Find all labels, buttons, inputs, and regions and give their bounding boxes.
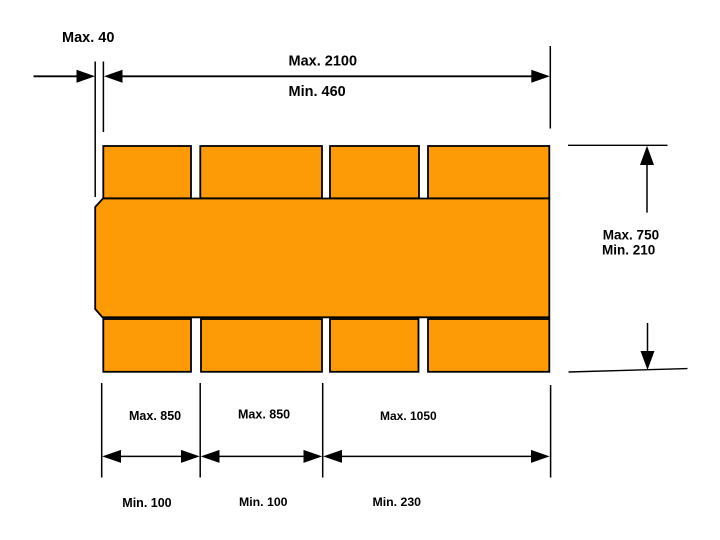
svg-text:Min. 100: Min. 100 bbox=[122, 496, 171, 510]
svg-text:Min. 210: Min. 210 bbox=[602, 243, 655, 258]
svg-text:Max. 850: Max. 850 bbox=[129, 409, 181, 423]
svg-text:Max. 750: Max. 750 bbox=[603, 228, 659, 243]
svg-text:Min. 230: Min. 230 bbox=[373, 495, 422, 509]
svg-text:Max. 1050: Max. 1050 bbox=[380, 409, 437, 423]
svg-text:Max. 2100: Max. 2100 bbox=[289, 53, 358, 69]
svg-text:Min. 460: Min. 460 bbox=[289, 84, 346, 100]
svg-text:Max. 40: Max. 40 bbox=[62, 30, 114, 46]
svg-text:Max. 850: Max. 850 bbox=[238, 408, 290, 422]
svg-text:Min. 100: Min. 100 bbox=[239, 495, 288, 509]
